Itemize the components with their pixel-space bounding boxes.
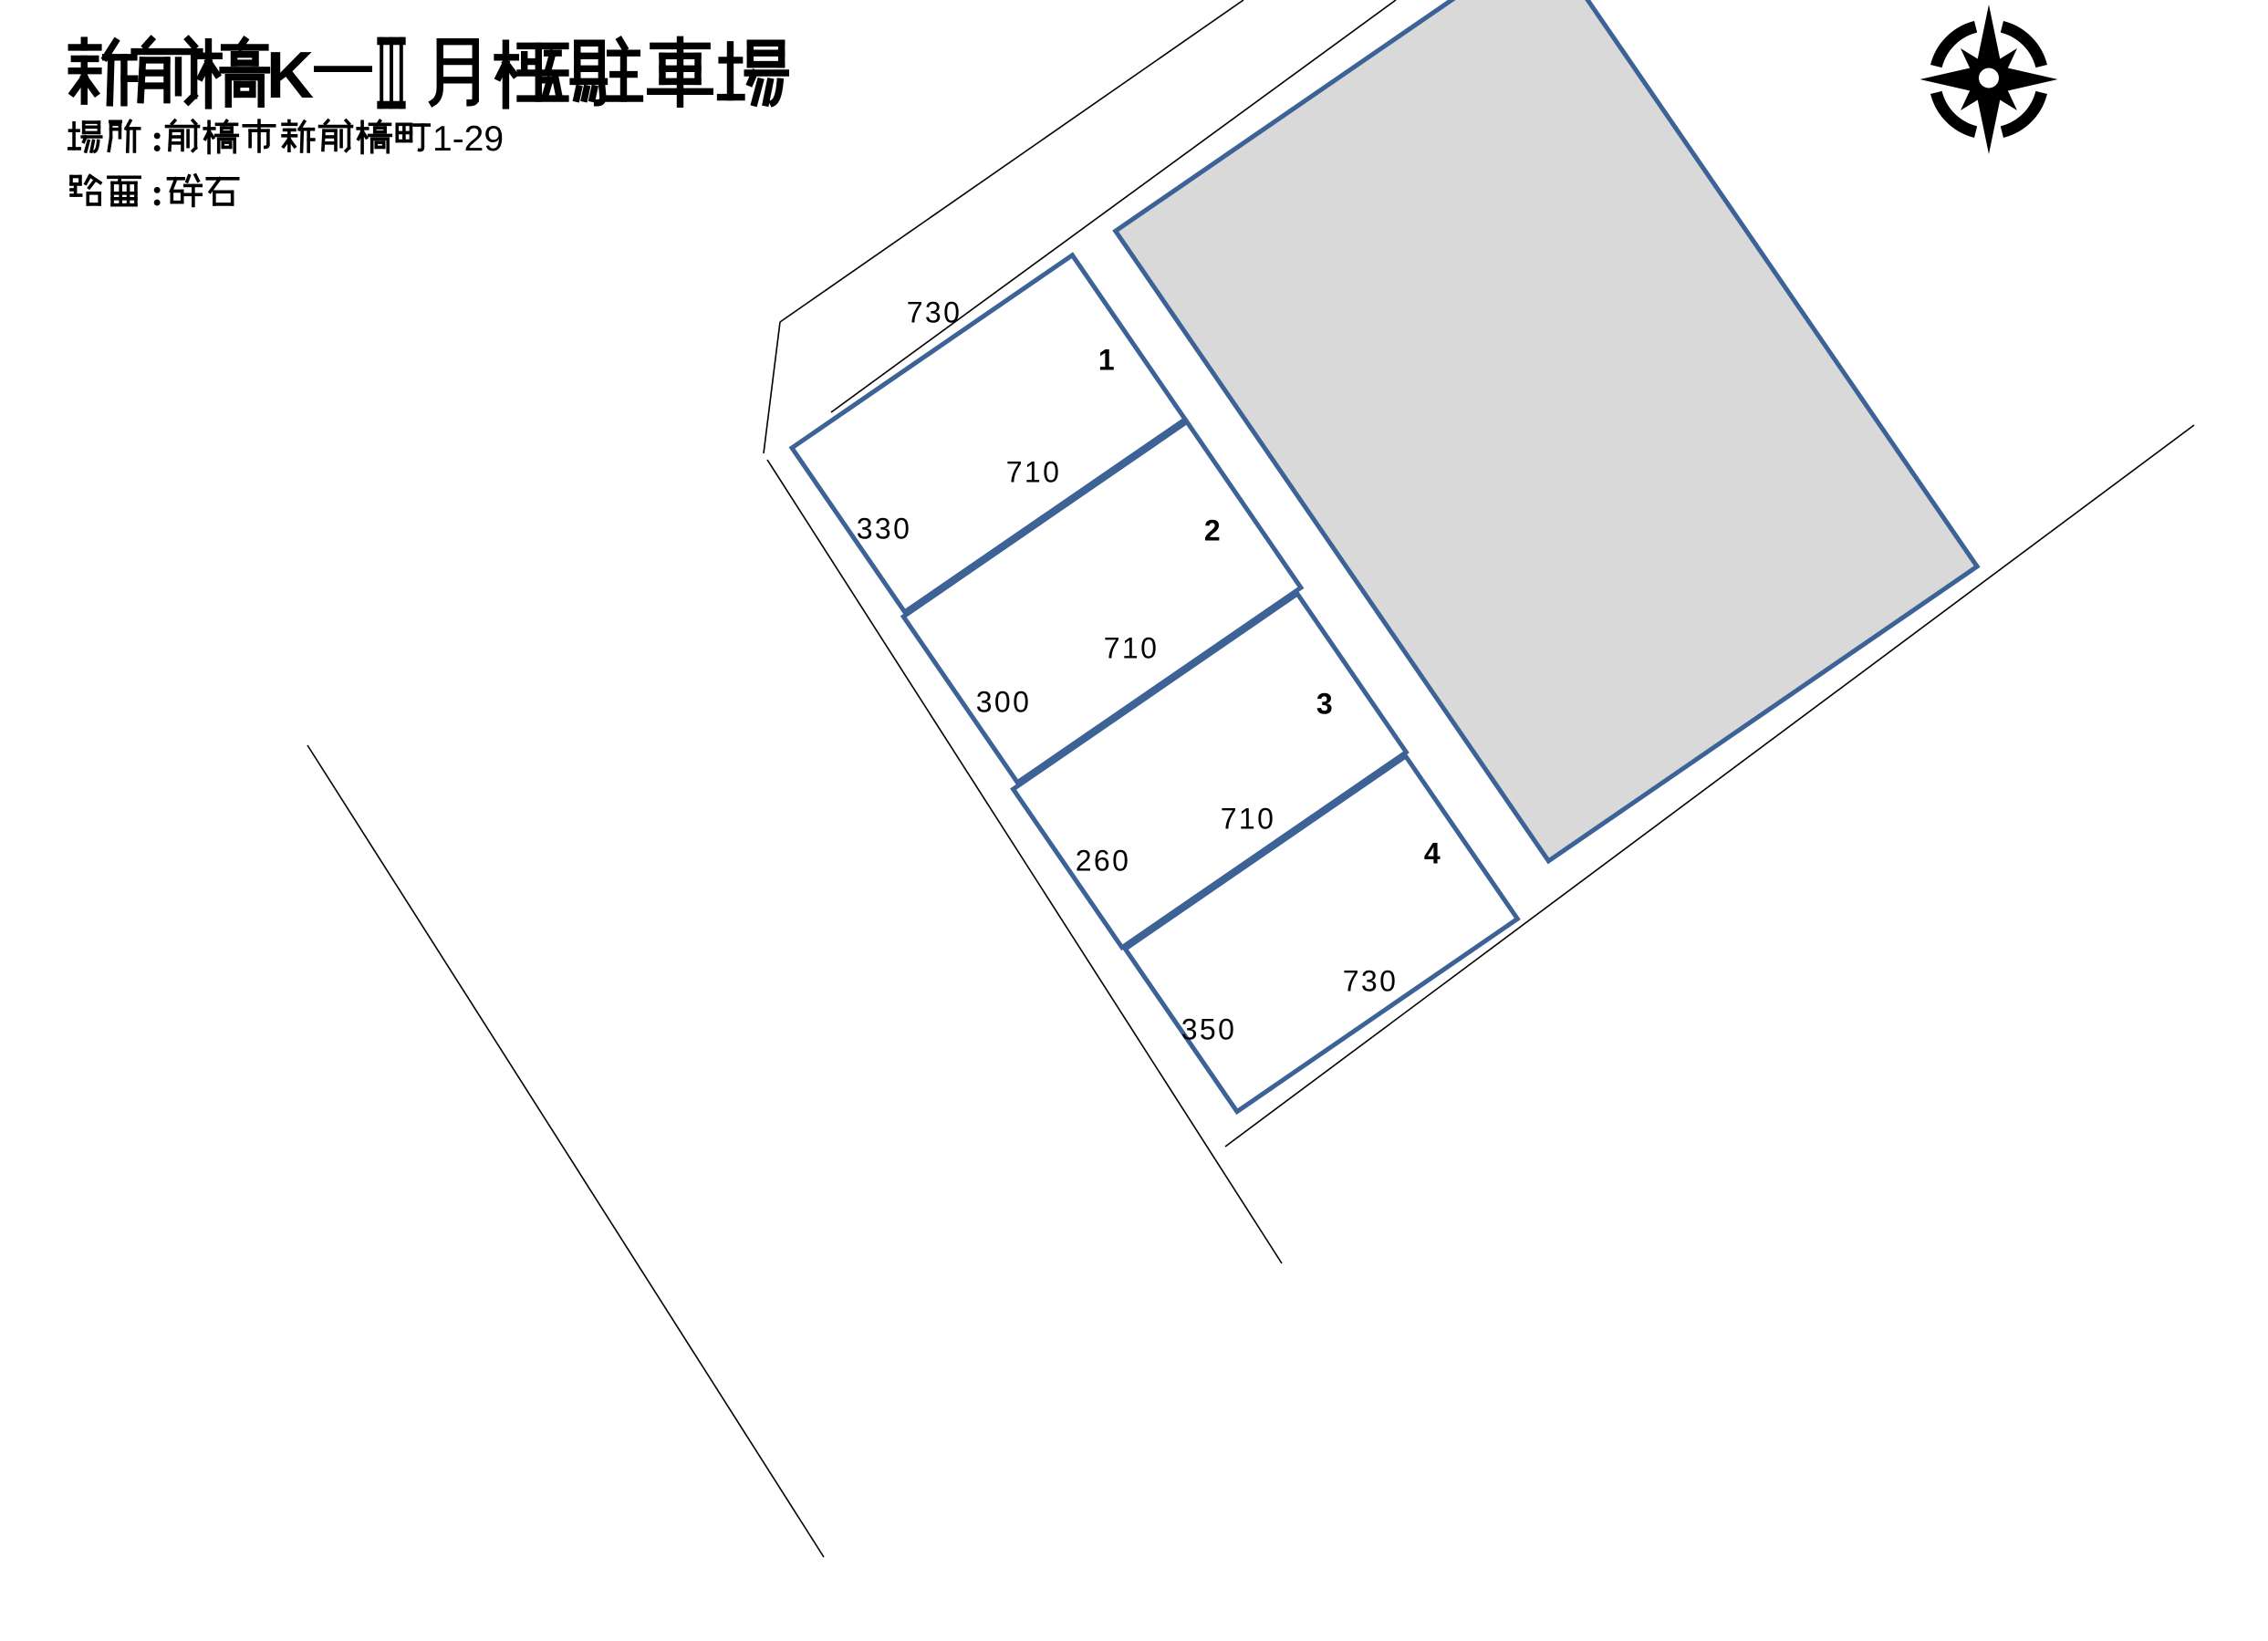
svg-text:710: 710: [1104, 632, 1160, 665]
svg-text:330: 330: [857, 513, 912, 545]
svg-text:K: K: [266, 39, 314, 112]
svg-text:2: 2: [1204, 514, 1222, 547]
svg-text:1-29: 1-29: [432, 119, 504, 159]
svg-text:710: 710: [1006, 456, 1062, 489]
svg-text:1: 1: [1098, 344, 1117, 377]
svg-text:710: 710: [1221, 803, 1276, 836]
svg-text:730: 730: [1343, 965, 1399, 998]
svg-text:3: 3: [1316, 688, 1335, 721]
svg-text:300: 300: [976, 686, 1032, 719]
svg-text:260: 260: [1076, 845, 1131, 878]
svg-text:730: 730: [907, 296, 962, 329]
svg-text:4: 4: [1424, 837, 1442, 870]
svg-text:350: 350: [1181, 1013, 1237, 1046]
